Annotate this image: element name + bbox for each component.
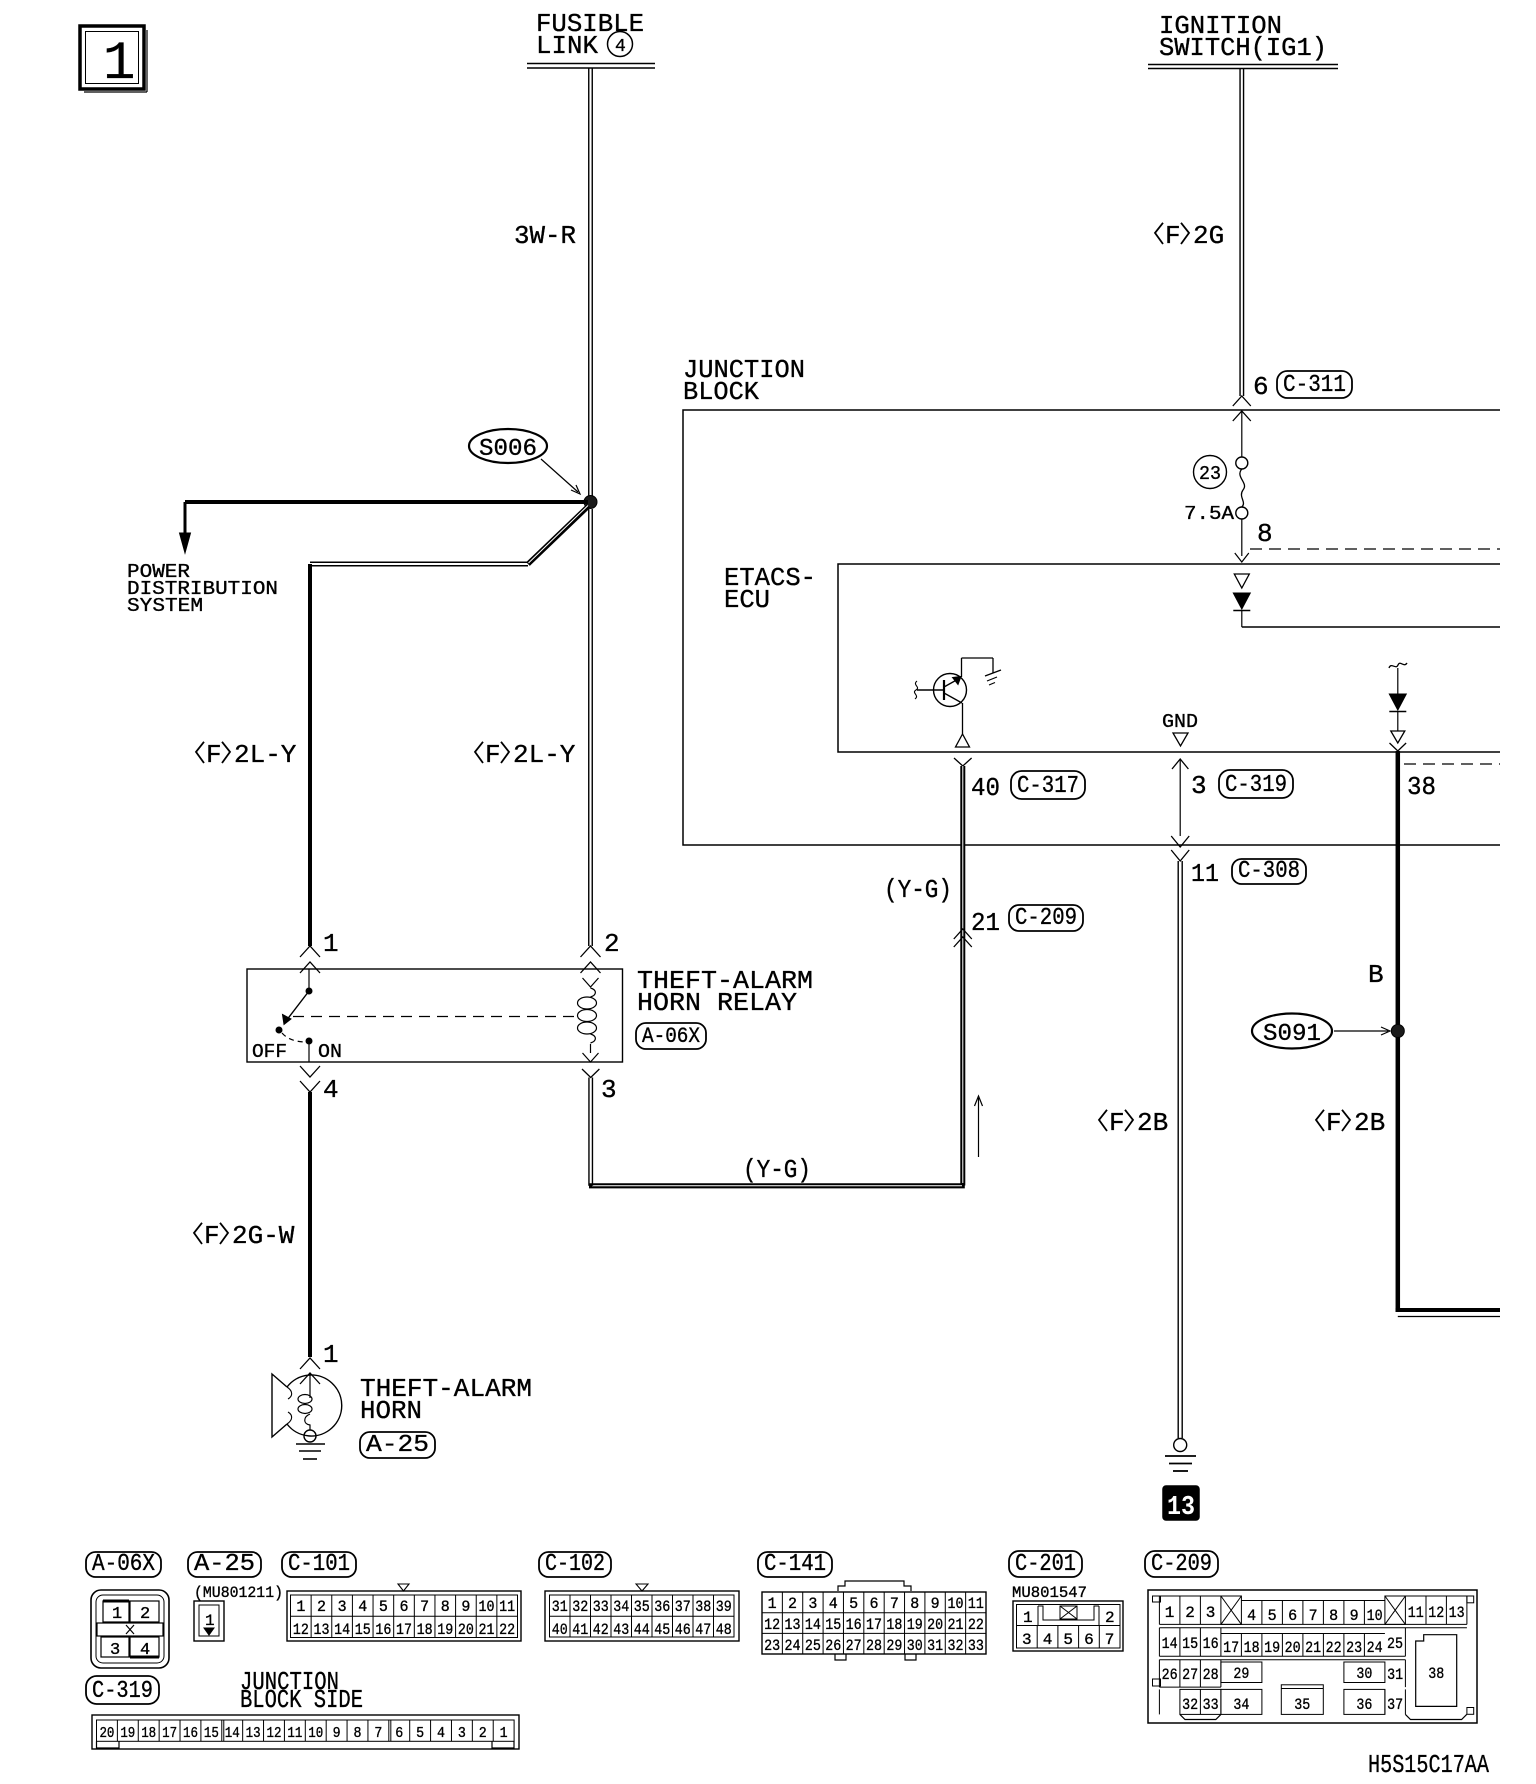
svg-text:36: 36	[1356, 1696, 1372, 1714]
svg-text:25: 25	[1387, 1635, 1403, 1653]
svg-text:20: 20	[458, 1621, 474, 1639]
svg-text:22: 22	[968, 1616, 984, 1634]
svg-text:28: 28	[866, 1637, 882, 1655]
svg-text:10: 10	[308, 1725, 323, 1742]
svg-text:(Y-G): (Y-G)	[743, 1155, 811, 1185]
svg-text:29: 29	[886, 1637, 902, 1655]
svg-text:1: 1	[205, 1612, 215, 1630]
svg-text:23: 23	[1199, 463, 1221, 485]
svg-text:1: 1	[1023, 1609, 1033, 1627]
svg-text:2: 2	[788, 1595, 797, 1613]
svg-text:41: 41	[572, 1621, 588, 1639]
svg-text:11: 11	[1191, 859, 1219, 889]
svg-text:HORN RELAY: HORN RELAY	[637, 988, 797, 1018]
svg-text:26: 26	[1162, 1666, 1178, 1684]
svg-text:14: 14	[1162, 1635, 1178, 1653]
svg-text:(Y-G): (Y-G)	[884, 875, 952, 905]
svg-text:40: 40	[971, 773, 1000, 803]
svg-text:17: 17	[162, 1725, 177, 1742]
svg-text:31: 31	[552, 1598, 568, 1616]
svg-text:SYSTEM: SYSTEM	[127, 595, 203, 617]
svg-text:2: 2	[1185, 1604, 1195, 1622]
svg-text:2: 2	[479, 1725, 487, 1742]
svg-text:2B: 2B	[1354, 1108, 1385, 1138]
svg-text:29: 29	[1233, 1665, 1249, 1683]
svg-text:12: 12	[764, 1616, 780, 1634]
svg-text:2: 2	[604, 929, 620, 959]
svg-text:33: 33	[968, 1637, 984, 1655]
svg-text:5: 5	[1268, 1607, 1277, 1625]
svg-text:13: 13	[785, 1616, 801, 1634]
svg-text:38: 38	[695, 1598, 711, 1616]
svg-text:8: 8	[910, 1595, 919, 1613]
svg-text:22: 22	[499, 1621, 515, 1639]
svg-text:20: 20	[927, 1616, 943, 1634]
svg-text:37: 37	[1387, 1696, 1403, 1714]
svg-text:19: 19	[437, 1621, 453, 1639]
svg-text:1: 1	[500, 1725, 508, 1742]
svg-text:35: 35	[634, 1598, 650, 1616]
svg-text:2B: 2B	[1137, 1108, 1168, 1138]
svg-text:5: 5	[1063, 1631, 1073, 1649]
svg-text:9: 9	[461, 1598, 470, 1616]
svg-text:SWITCH(IG1): SWITCH(IG1)	[1159, 33, 1327, 63]
svg-text:BLOCK SIDE: BLOCK SIDE	[240, 1685, 363, 1715]
svg-text:3: 3	[808, 1595, 817, 1613]
svg-text:1: 1	[323, 1340, 339, 1370]
svg-text:33: 33	[593, 1598, 609, 1616]
svg-text:46: 46	[675, 1621, 691, 1639]
svg-text:A-25: A-25	[366, 1432, 429, 1459]
svg-text:2G: 2G	[1193, 221, 1224, 251]
svg-text:33: 33	[1203, 1696, 1219, 1714]
svg-text:7: 7	[374, 1725, 382, 1742]
svg-text:15: 15	[825, 1616, 841, 1634]
svg-text:C-209: C-209	[1015, 905, 1077, 932]
svg-text:18: 18	[886, 1616, 902, 1634]
svg-text:7: 7	[1105, 1631, 1115, 1649]
svg-text:2L-Y: 2L-Y	[234, 740, 297, 770]
svg-text:16: 16	[183, 1725, 198, 1742]
svg-text:6: 6	[870, 1595, 879, 1613]
svg-text:10: 10	[1367, 1607, 1383, 1625]
svg-text:8: 8	[1257, 519, 1273, 549]
svg-text:20: 20	[99, 1725, 114, 1742]
svg-text:3: 3	[458, 1725, 466, 1742]
svg-text:27: 27	[1182, 1666, 1198, 1684]
svg-text:C-319: C-319	[1225, 772, 1287, 799]
svg-text:6: 6	[1084, 1631, 1094, 1649]
svg-text:C-319: C-319	[92, 1678, 153, 1705]
svg-text:40: 40	[552, 1621, 568, 1639]
svg-text:3: 3	[1022, 1631, 1032, 1649]
svg-text:OFF: OFF	[252, 1041, 287, 1063]
svg-text:A-06X: A-06X	[92, 1551, 155, 1578]
svg-text:43: 43	[613, 1621, 629, 1639]
svg-text:10: 10	[479, 1598, 495, 1616]
svg-text:20: 20	[1285, 1639, 1301, 1657]
svg-text:14: 14	[225, 1725, 240, 1742]
svg-text:S091: S091	[1263, 1021, 1321, 1048]
svg-text:39: 39	[716, 1598, 732, 1616]
svg-text:34: 34	[1233, 1696, 1249, 1714]
svg-text:GND: GND	[1162, 711, 1198, 733]
svg-text:2: 2	[317, 1598, 326, 1616]
svg-text:23: 23	[764, 1637, 780, 1655]
svg-text:9: 9	[931, 1595, 940, 1613]
svg-text:7.5A: 7.5A	[1184, 503, 1235, 525]
svg-text:13: 13	[1167, 1493, 1195, 1523]
svg-text:11: 11	[499, 1598, 515, 1616]
svg-text:C-209: C-209	[1151, 1551, 1212, 1578]
svg-text:13: 13	[313, 1621, 329, 1639]
svg-text:17: 17	[396, 1621, 412, 1639]
svg-text:11: 11	[1408, 1604, 1424, 1622]
svg-text:6: 6	[1253, 372, 1269, 402]
svg-text:C-141: C-141	[764, 1551, 826, 1578]
svg-text:28: 28	[1203, 1666, 1219, 1684]
svg-text:5: 5	[379, 1598, 388, 1616]
svg-text:11: 11	[287, 1725, 302, 1742]
svg-text:27: 27	[846, 1637, 862, 1655]
svg-text:13: 13	[246, 1725, 261, 1742]
svg-text:B: B	[1368, 960, 1384, 990]
svg-text:BLOCK: BLOCK	[683, 377, 759, 407]
svg-text:F: F	[1109, 1108, 1125, 1138]
svg-text:38: 38	[1407, 772, 1436, 802]
svg-text:5: 5	[416, 1725, 424, 1742]
svg-text:4: 4	[1043, 1631, 1053, 1649]
svg-text:4: 4	[323, 1075, 339, 1105]
svg-text:LINK: LINK	[536, 31, 598, 61]
svg-text:ECU: ECU	[724, 585, 770, 615]
svg-text:S006: S006	[479, 436, 537, 463]
svg-text:C-201: C-201	[1015, 1551, 1076, 1578]
svg-text:15: 15	[355, 1621, 371, 1639]
svg-text:21: 21	[971, 908, 1000, 938]
svg-text:30: 30	[1356, 1665, 1372, 1683]
svg-text:4: 4	[358, 1598, 367, 1616]
svg-text:16: 16	[1203, 1635, 1219, 1653]
svg-text:47: 47	[695, 1621, 711, 1639]
svg-text:4: 4	[437, 1725, 445, 1742]
svg-text:48: 48	[716, 1621, 732, 1639]
svg-text:8: 8	[441, 1598, 450, 1616]
svg-text:MU801547: MU801547	[1012, 1584, 1087, 1602]
svg-text:44: 44	[634, 1621, 650, 1639]
svg-text:3: 3	[338, 1598, 347, 1616]
svg-text:7: 7	[420, 1598, 429, 1616]
svg-text:H5S15C17AA: H5S15C17AA	[1368, 1750, 1489, 1780]
svg-text:45: 45	[654, 1621, 670, 1639]
svg-text:32: 32	[947, 1637, 963, 1655]
svg-text:14: 14	[334, 1621, 350, 1639]
svg-text:6: 6	[395, 1725, 403, 1742]
svg-text:38: 38	[1428, 1665, 1444, 1683]
svg-text:9: 9	[333, 1725, 341, 1742]
svg-text:30: 30	[907, 1637, 923, 1655]
svg-text:31: 31	[927, 1637, 943, 1655]
svg-text:7: 7	[1309, 1607, 1318, 1625]
svg-text:21: 21	[947, 1616, 963, 1634]
svg-text:35: 35	[1294, 1696, 1310, 1714]
svg-text:42: 42	[593, 1621, 609, 1639]
svg-text:16: 16	[846, 1616, 862, 1634]
svg-text:13: 13	[1449, 1604, 1465, 1622]
svg-text:A-06X: A-06X	[642, 1024, 700, 1049]
svg-text:5: 5	[849, 1595, 858, 1613]
svg-text:15: 15	[1182, 1635, 1198, 1653]
svg-text:21: 21	[1305, 1639, 1321, 1657]
svg-text:3: 3	[1206, 1604, 1216, 1622]
svg-text:4: 4	[140, 1641, 150, 1660]
svg-text:1: 1	[103, 34, 135, 95]
svg-text:24: 24	[1367, 1639, 1383, 1657]
svg-text:18: 18	[417, 1621, 433, 1639]
svg-text:17: 17	[866, 1616, 882, 1634]
svg-text:3W-R: 3W-R	[514, 221, 576, 251]
svg-text:18: 18	[141, 1725, 156, 1742]
svg-text:F: F	[485, 740, 501, 770]
svg-text:C-308: C-308	[1238, 858, 1300, 885]
svg-text:32: 32	[572, 1598, 588, 1616]
svg-text:ON: ON	[318, 1041, 342, 1063]
svg-text:(MU801211): (MU801211)	[194, 1584, 283, 1602]
svg-text:C-311: C-311	[1283, 372, 1346, 399]
svg-text:22: 22	[1326, 1639, 1342, 1657]
svg-text:6: 6	[400, 1598, 409, 1616]
svg-text:32: 32	[1182, 1696, 1198, 1714]
svg-text:12: 12	[293, 1621, 309, 1639]
svg-text:C-102: C-102	[545, 1551, 605, 1578]
svg-text:34: 34	[613, 1598, 629, 1616]
svg-text:10: 10	[947, 1595, 963, 1613]
svg-text:1: 1	[112, 1605, 122, 1624]
svg-text:1: 1	[323, 929, 339, 959]
svg-text:4: 4	[1247, 1607, 1256, 1625]
svg-text:8: 8	[1329, 1607, 1338, 1625]
svg-text:19: 19	[120, 1725, 135, 1742]
svg-text:12: 12	[1428, 1604, 1444, 1622]
svg-text:25: 25	[805, 1637, 821, 1655]
svg-text:36: 36	[654, 1598, 670, 1616]
svg-text:19: 19	[1264, 1639, 1280, 1657]
svg-text:1: 1	[1165, 1604, 1175, 1622]
svg-text:2G-W: 2G-W	[232, 1221, 295, 1251]
svg-text:C-101: C-101	[288, 1551, 350, 1578]
svg-text:C-317: C-317	[1017, 773, 1079, 800]
svg-text:31: 31	[1387, 1666, 1403, 1684]
svg-text:9: 9	[1350, 1607, 1359, 1625]
svg-text:2: 2	[1105, 1609, 1115, 1627]
svg-text:2L-Y: 2L-Y	[513, 740, 576, 770]
svg-text:2: 2	[140, 1605, 150, 1624]
svg-text:19: 19	[907, 1616, 923, 1634]
svg-text:18: 18	[1244, 1639, 1260, 1657]
svg-text:3: 3	[110, 1641, 120, 1660]
svg-text:11: 11	[968, 1595, 984, 1613]
svg-text:3: 3	[601, 1075, 617, 1105]
svg-text:21: 21	[479, 1621, 495, 1639]
svg-text:8: 8	[354, 1725, 362, 1742]
svg-text:17: 17	[1223, 1639, 1239, 1657]
svg-text:A-25: A-25	[194, 1551, 255, 1578]
svg-text:F: F	[204, 1221, 220, 1251]
svg-text:15: 15	[204, 1725, 219, 1742]
svg-text:F: F	[1326, 1108, 1342, 1138]
svg-text:7: 7	[890, 1595, 899, 1613]
svg-text:37: 37	[675, 1598, 691, 1616]
svg-text:26: 26	[825, 1637, 841, 1655]
svg-text:HORN: HORN	[360, 1396, 422, 1426]
svg-text:6: 6	[1288, 1607, 1297, 1625]
svg-text:16: 16	[375, 1621, 391, 1639]
svg-text:24: 24	[785, 1637, 801, 1655]
svg-text:4: 4	[615, 37, 626, 57]
svg-text:1: 1	[296, 1598, 305, 1616]
svg-text:23: 23	[1346, 1639, 1362, 1657]
svg-text:3: 3	[1191, 771, 1207, 801]
svg-text:4: 4	[829, 1595, 838, 1613]
svg-text:1: 1	[768, 1595, 777, 1613]
svg-text:F: F	[206, 740, 222, 770]
svg-text:F: F	[1165, 221, 1181, 251]
svg-text:12: 12	[266, 1725, 281, 1742]
svg-text:14: 14	[805, 1616, 821, 1634]
